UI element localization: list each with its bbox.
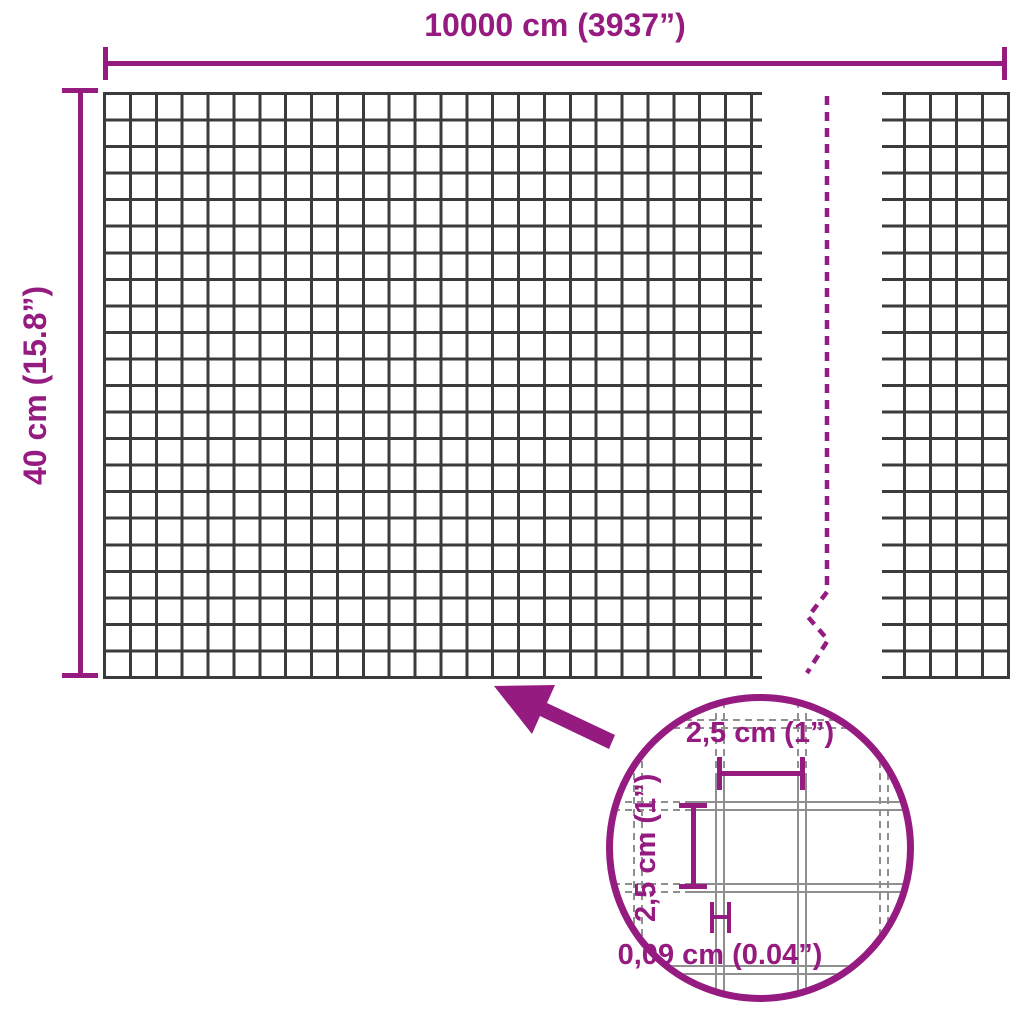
detail-cell-width-label: 2,5 cm (1”) [660, 716, 860, 750]
detail-height-dimension-line [691, 805, 696, 887]
detail-width-dimension-line [719, 771, 803, 776]
detail-cell-height-label: 2,5 cm (1”) [628, 765, 664, 930]
detail-height-tick-bottom [679, 884, 707, 889]
break-line-dashed [807, 96, 828, 673]
detail-height-tick-top [679, 803, 707, 808]
product-dimension-diagram: 10000 cm (3937”) 40 cm (15.8”) [0, 0, 1024, 1024]
detail-width-tick-left [717, 757, 722, 790]
magnifier-arrow-icon [494, 685, 615, 749]
detail-width-tick-right [800, 757, 805, 790]
wire-thickness-marker-cross [710, 915, 731, 919]
detail-wire-thickness-label: 0,09 cm (0.04”) [605, 938, 835, 972]
